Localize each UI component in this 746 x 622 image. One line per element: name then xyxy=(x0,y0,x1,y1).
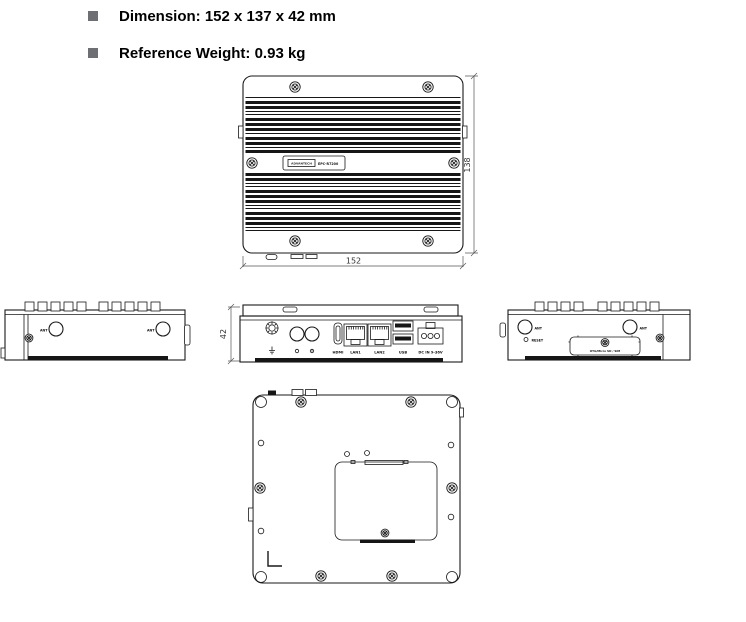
mounting-hole xyxy=(448,442,454,448)
access-cover xyxy=(335,461,437,544)
mounting-hole xyxy=(365,451,370,456)
phillips-screw-icon xyxy=(290,82,300,92)
expansion-cover-panel: OTG/Micro SD / SIM xyxy=(569,336,641,357)
corner-hole-icon xyxy=(447,572,458,583)
lid-slot xyxy=(424,307,438,312)
orientation-mark xyxy=(268,551,282,566)
mounting-hole xyxy=(345,452,350,457)
ant-hole-icon xyxy=(290,327,304,341)
phillips-screw-icon xyxy=(447,483,457,493)
ant-hole-icon xyxy=(49,322,63,336)
mounting-hole xyxy=(448,514,454,520)
bottom-view-drawing xyxy=(249,390,464,584)
panel-label: OTG/Micro SD / SIM xyxy=(590,349,621,353)
reset-button-hole xyxy=(524,338,528,342)
lid-slot xyxy=(283,307,297,312)
height-dimension-value: 138 xyxy=(463,157,472,172)
grounding-screw-icon xyxy=(265,321,278,334)
heatsink-fins-lower xyxy=(246,173,461,231)
phillips-screw-icon xyxy=(449,158,459,168)
model-text: EPC-R7200 xyxy=(318,162,339,166)
edge-tab xyxy=(500,323,506,337)
indicator-dot-icon xyxy=(295,349,298,352)
dimension-drawing: ADVANTECH EPC-R7200 138 152 xyxy=(0,0,746,622)
mounting-hole xyxy=(258,528,264,534)
rubber-foot-bar xyxy=(28,356,168,360)
lan1-label: LAN1 xyxy=(350,351,361,355)
usb-label: USB xyxy=(399,351,408,355)
front-view-drawing: 42 xyxy=(219,304,462,364)
phillips-screw-icon xyxy=(247,158,257,168)
ant-label: ANT xyxy=(640,326,648,330)
top-view-drawing: ADVANTECH EPC-R7200 138 152 xyxy=(239,73,479,269)
top-edge-bumps xyxy=(268,390,317,396)
phillips-screw-icon xyxy=(601,339,609,347)
ant-hole-icon xyxy=(518,320,532,334)
height-dimension-value: 42 xyxy=(219,329,228,339)
ant-label: ANT xyxy=(147,328,155,332)
reset-label: RESET xyxy=(532,338,544,342)
hdmi-port xyxy=(334,323,342,344)
earth-ground-icon xyxy=(269,347,275,354)
corner-hole-icon xyxy=(256,397,267,408)
heatsink-fins-upper xyxy=(246,97,461,153)
ant-hole-icon xyxy=(156,322,170,336)
right-side-view-drawing: ANT ANT RESET OTG/Micro SD / SIM xyxy=(500,302,690,360)
hdmi-label: HDMI xyxy=(333,351,344,355)
corner-hole-icon xyxy=(256,572,267,583)
ant-label: ANT xyxy=(535,326,543,330)
phillips-screw-icon xyxy=(387,571,397,581)
ant-label: ANT xyxy=(40,328,48,332)
lan1-port xyxy=(344,324,367,346)
edge-tab xyxy=(463,126,468,138)
lan2-label: LAN2 xyxy=(374,351,385,355)
indicator-dot-icon xyxy=(310,349,313,352)
ant-hole-icon xyxy=(623,320,637,334)
phillips-screw-icon xyxy=(406,397,416,407)
phillips-screw-icon xyxy=(381,529,389,537)
front-connector-bumps xyxy=(266,255,317,260)
height-dimension-lines xyxy=(228,304,240,364)
nameplate: ADVANTECH EPC-R7200 xyxy=(283,156,345,170)
width-dimension-value: 152 xyxy=(346,257,361,266)
dc-in-label: DC IN 9-36V xyxy=(418,351,442,355)
phillips-screw-icon xyxy=(296,397,306,407)
brand-logo-text: ADVANTECH xyxy=(291,162,312,166)
edge-tab xyxy=(185,325,191,345)
cover-bottom-bar xyxy=(360,540,415,544)
phillips-screw-icon xyxy=(656,334,664,342)
phillips-screw-icon xyxy=(290,236,300,246)
phillips-screw-icon xyxy=(255,483,265,493)
left-side-view-drawing: ANT ANT xyxy=(1,302,190,360)
rubber-foot-bar xyxy=(525,356,661,360)
phillips-screw-icon xyxy=(25,334,33,342)
ant-hole-icon xyxy=(305,327,319,341)
phillips-screw-icon xyxy=(423,82,433,92)
rubber-foot-bar xyxy=(255,358,443,362)
port-label-row: HDMI LAN1 LAN2 USB DC IN 9-36V xyxy=(269,347,443,355)
edge-tab xyxy=(460,408,464,417)
usb-ports xyxy=(393,321,413,344)
phillips-screw-icon xyxy=(423,236,433,246)
datasheet-page: Dimension: 152 x 137 x 42 mm Reference W… xyxy=(0,0,746,622)
edge-tab xyxy=(239,126,244,138)
phillips-screw-icon xyxy=(316,571,326,581)
mounting-hole xyxy=(258,440,264,446)
dc-power-connector xyxy=(418,323,443,345)
edge-tab xyxy=(249,508,254,521)
edge-tab xyxy=(1,348,5,358)
corner-hole-icon xyxy=(447,397,458,408)
lan2-port xyxy=(368,324,391,346)
